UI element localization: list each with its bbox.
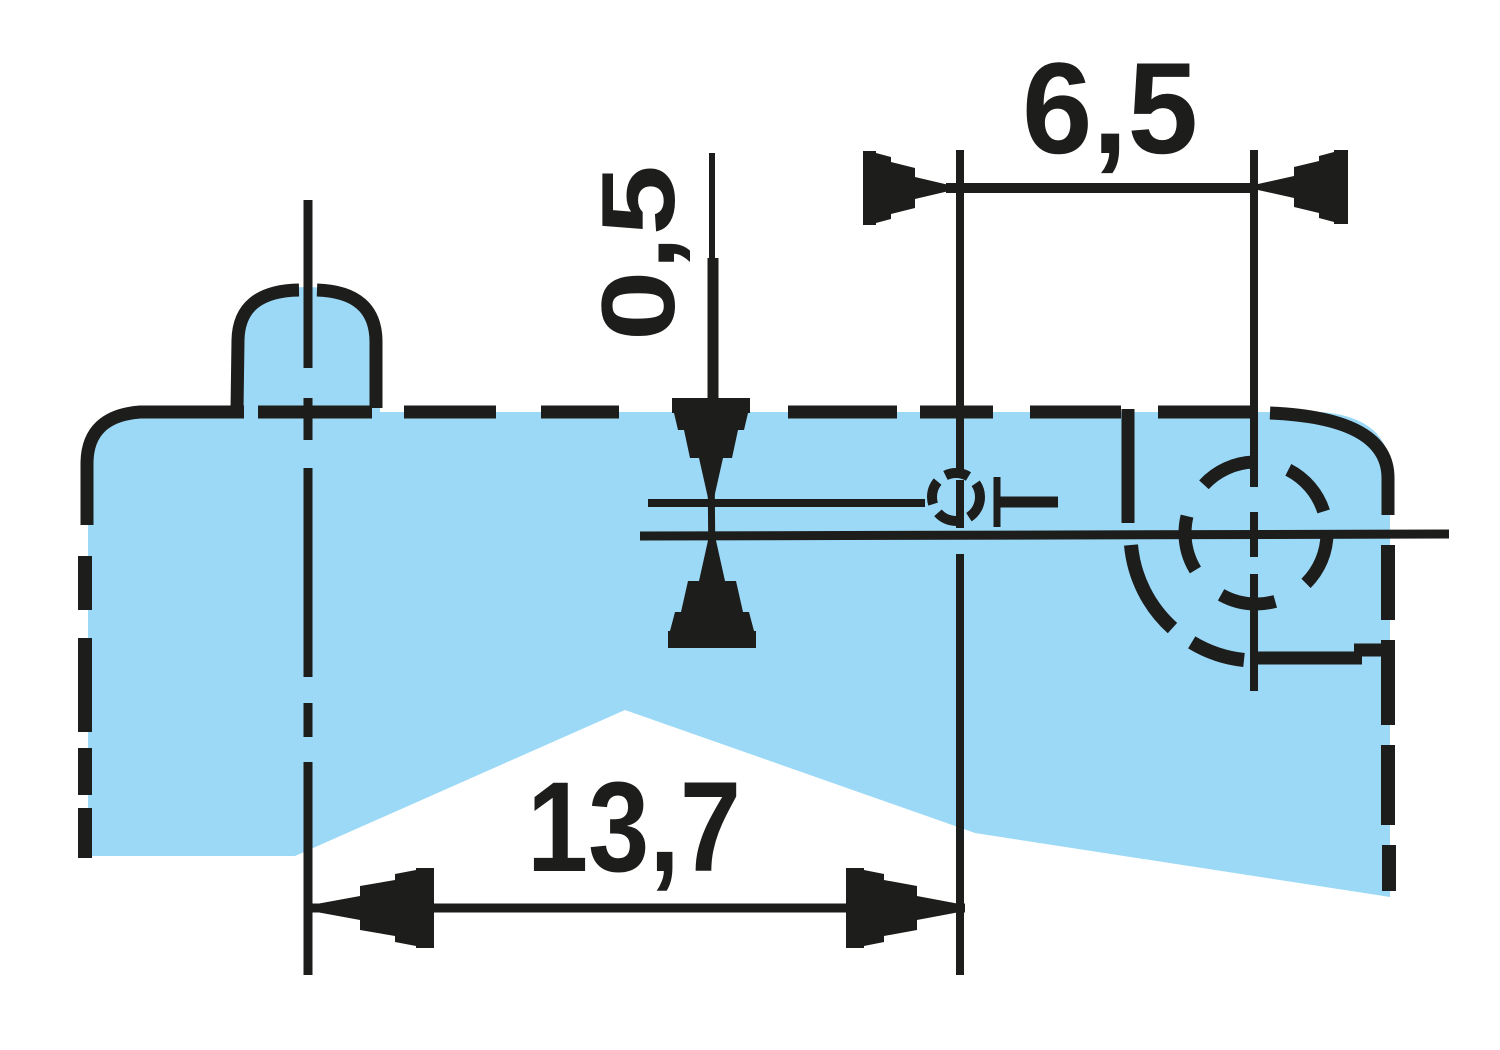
svg-text:6,5: 6,5 bbox=[1022, 35, 1198, 181]
svg-text:13,7: 13,7 bbox=[527, 756, 741, 899]
svg-text:0,5: 0,5 bbox=[581, 165, 697, 341]
